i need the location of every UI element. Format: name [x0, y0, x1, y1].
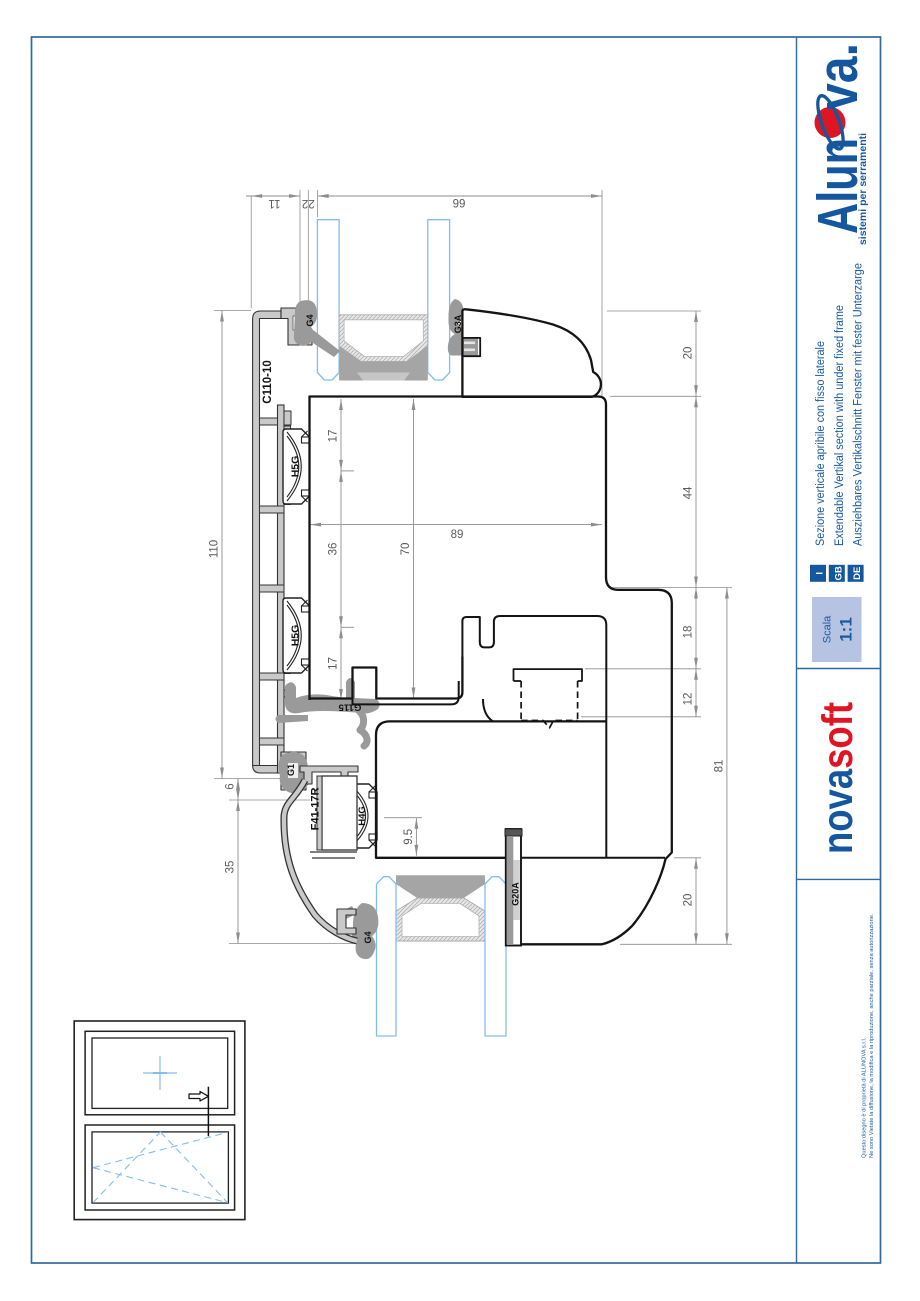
svg-text:11: 11: [269, 197, 281, 209]
svg-text:Scala: Scala: [822, 615, 834, 643]
svg-text:17: 17: [328, 430, 340, 443]
svg-text:va.: va.: [806, 43, 870, 110]
svg-text:110: 110: [209, 540, 221, 558]
svg-text:GB: GB: [833, 566, 844, 580]
svg-text:sistemi per serramenti: sistemi per serramenti: [857, 133, 869, 245]
svg-text:I: I: [815, 572, 826, 575]
svg-text:70: 70: [400, 543, 412, 556]
svg-text:99: 99: [453, 199, 466, 211]
svg-text:89: 89: [451, 529, 464, 541]
svg-text:35: 35: [225, 861, 237, 874]
svg-text:G3A: G3A: [453, 314, 463, 333]
svg-text:G4: G4: [363, 931, 373, 943]
svg-text:36: 36: [328, 543, 340, 556]
svg-text:DE: DE: [852, 567, 863, 580]
svg-text:12: 12: [683, 693, 695, 706]
svg-text:C110-10: C110-10: [262, 360, 274, 403]
svg-text:H4G: H4G: [357, 806, 368, 826]
svg-text:44: 44: [683, 486, 695, 499]
svg-text:Ne sono Vietate la diffusione,: Ne sono Vietate la diffusione, la modifi…: [869, 913, 875, 1158]
svg-text:18: 18: [683, 626, 695, 639]
svg-text:Ausziehbares Vertikalschnitt F: Ausziehbares Vertikalschnitt Fenster mit…: [853, 263, 865, 546]
svg-text:G1: G1: [286, 764, 296, 776]
svg-text:Extendable Vertikal section wi: Extendable Vertikal section with under f…: [834, 305, 846, 546]
svg-text:22: 22: [302, 197, 315, 209]
svg-text:Questo disegno è di proprietà: Questo disegno è di proprietà di ALUNOVA…: [862, 1037, 868, 1158]
svg-text:1:1: 1:1: [837, 617, 856, 642]
svg-text:H5G: H5G: [289, 456, 301, 478]
svg-text:81: 81: [713, 760, 725, 773]
svg-text:20: 20: [683, 894, 695, 907]
svg-text:17: 17: [328, 657, 340, 670]
svg-text:H5G: H5G: [289, 625, 301, 647]
svg-text:F41-17R: F41-17R: [310, 788, 322, 831]
svg-text:9.5: 9.5: [403, 829, 415, 845]
svg-text:Sezione verticale apribile con: Sezione verticale apribile con fisso lat…: [815, 341, 827, 546]
svg-text:novasoft: novasoft: [814, 702, 862, 854]
svg-text:G115: G115: [338, 702, 361, 713]
svg-text:G4: G4: [305, 314, 315, 326]
svg-text:6: 6: [225, 783, 237, 789]
svg-text:20: 20: [683, 347, 695, 360]
svg-text:G20A: G20A: [511, 882, 521, 906]
